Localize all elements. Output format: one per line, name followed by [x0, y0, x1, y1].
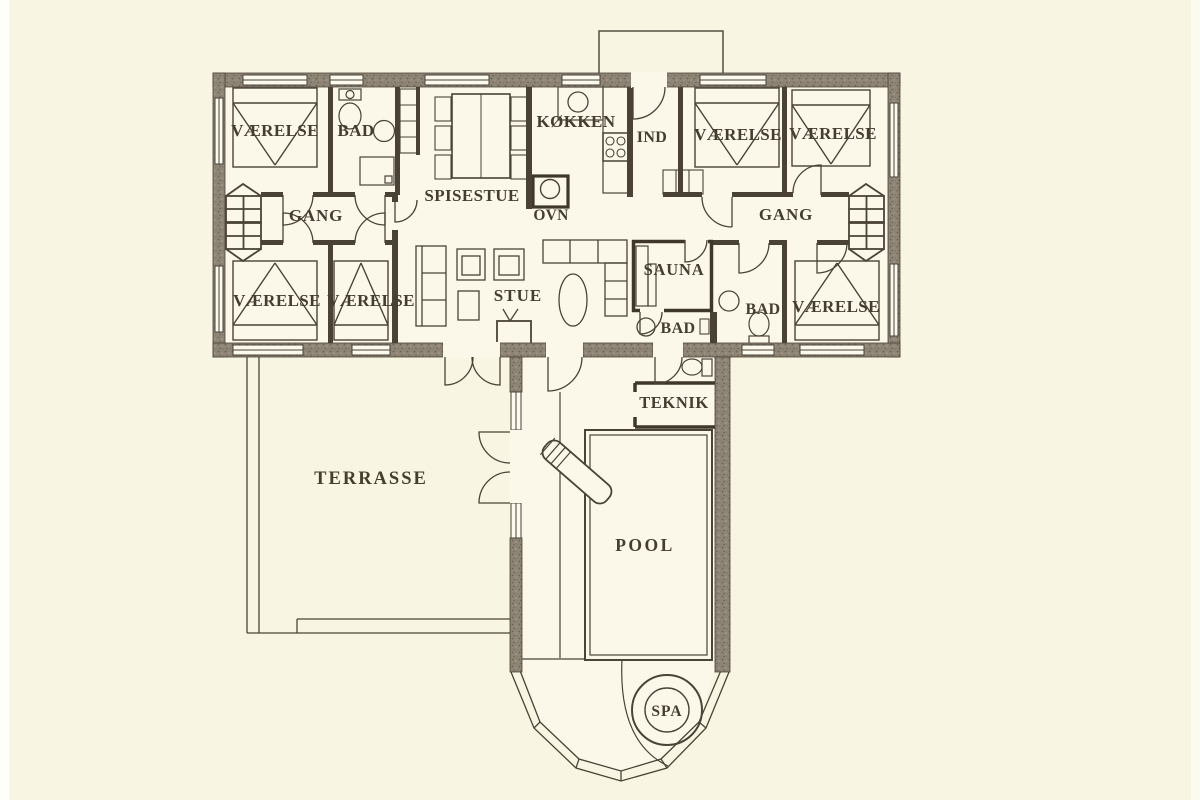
- room-label-vaerelse-top-left: VÆRELSE: [231, 121, 319, 140]
- room-label-vaerelse-top-mid: VÆRELSE: [694, 125, 782, 144]
- window-icon: [511, 503, 521, 538]
- room-label-vaerelse-top-right: VÆRELSE: [789, 124, 877, 143]
- page-edge-right: [1191, 0, 1200, 800]
- window-icon: [215, 266, 223, 332]
- room-label-stue: STUE: [494, 286, 542, 305]
- window-icon: [890, 103, 898, 177]
- window-icon: [233, 345, 303, 355]
- room-label-koekken: KØKKEN: [537, 112, 616, 131]
- chimney-icon: [599, 31, 723, 75]
- window-icon: [425, 75, 489, 85]
- room-label-vaerelse-bottom-left: VÆRELSE: [233, 291, 321, 310]
- room-label-ind: IND: [637, 129, 668, 146]
- door-swing-icon: [445, 357, 473, 385]
- bay-window-icon: [226, 184, 261, 261]
- room-label-bad-top-left: BAD: [337, 121, 374, 140]
- window-icon: [243, 75, 307, 85]
- room-label-spa: SPA: [651, 703, 682, 720]
- room-label-pool: POOL: [615, 535, 675, 555]
- room-label-teknik: TEKNIK: [639, 393, 709, 412]
- room-label-terrasse: TERRASSE: [314, 469, 428, 489]
- page-edge-left: [0, 0, 9, 800]
- window-icon: [330, 75, 363, 85]
- room-label-bad-center: BAD: [661, 320, 696, 337]
- room-label-vaerelse-bottom-right: VÆRELSE: [792, 297, 880, 316]
- door-swing-icon: [479, 472, 510, 503]
- room-label-gang-right: GANG: [759, 205, 813, 224]
- room-label-ovn: OVN: [533, 207, 568, 224]
- floor-plan-canvas: VÆRELSE BAD SPISESTUE KØKKEN IND VÆRELSE…: [0, 0, 1200, 800]
- door-swing-icon: [472, 357, 500, 385]
- window-icon: [511, 392, 521, 430]
- window-icon: [215, 98, 223, 164]
- door-swing-icon: [479, 432, 510, 463]
- floor-areas: [225, 87, 888, 771]
- window-icon: [890, 264, 898, 336]
- room-label-spisestue: SPISESTUE: [424, 186, 519, 205]
- bay-window-icon: [849, 184, 884, 261]
- window-icon: [352, 345, 390, 355]
- floor-plan: VÆRELSE BAD SPISESTUE KØKKEN IND VÆRELSE…: [0, 0, 1200, 800]
- window-icon: [800, 345, 864, 355]
- room-label-sauna: SAUNA: [644, 260, 705, 279]
- room-label-bad-right: BAD: [746, 301, 781, 318]
- room-label-vaerelse-bottom-mid: VÆRELSE: [327, 291, 415, 310]
- window-icon: [700, 75, 766, 85]
- window-icon: [742, 345, 774, 355]
- room-label-gang-left: GANG: [289, 206, 343, 225]
- terrasse-outline: [247, 357, 512, 633]
- window-icon: [562, 75, 600, 85]
